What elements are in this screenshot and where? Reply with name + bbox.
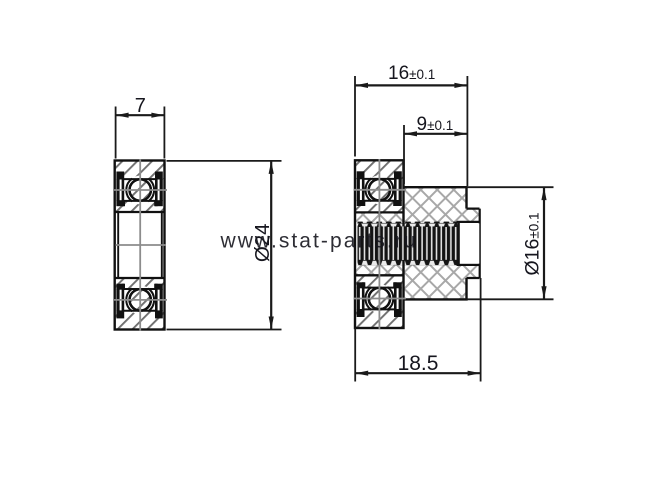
svg-text:9±0.1: 9±0.1 [417,114,454,135]
svg-text:18.5: 18.5 [398,352,439,375]
svg-text:www.stat-parts.ru: www.stat-parts.ru [220,230,418,253]
svg-text:16±0.1: 16±0.1 [388,63,435,84]
svg-text:7: 7 [135,95,146,117]
